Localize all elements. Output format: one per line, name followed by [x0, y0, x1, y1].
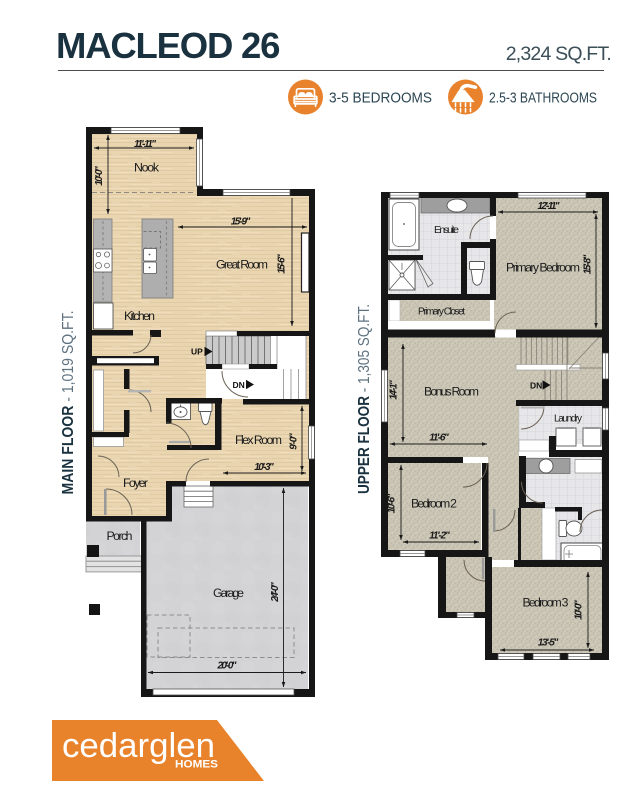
- svg-text:10'-0": 10'-0": [574, 600, 585, 620]
- svg-text:Foyer: Foyer: [123, 476, 148, 490]
- svg-text:10'-3": 10'-3": [254, 462, 274, 473]
- svg-text:10'-0": 10'-0": [94, 166, 105, 186]
- svg-text:11'-6": 11'-6": [429, 433, 449, 444]
- svg-text:Ensuite: Ensuite: [434, 224, 459, 236]
- svg-text:14'-1": 14'-1": [389, 380, 400, 400]
- svg-text:HOMES: HOMES: [175, 759, 218, 771]
- svg-text:DN: DN: [233, 380, 245, 390]
- svg-text:MAIN FLOOR - 1,019 SQ.FT.: MAIN FLOOR - 1,019 SQ.FT.: [60, 311, 77, 495]
- svg-text:11'-2": 11'-2": [429, 531, 450, 542]
- svg-text:UPPER FLOOR - 1,305 SQ.FT.: UPPER FLOOR - 1,305 SQ.FT.: [356, 304, 373, 494]
- svg-text:Primary Closet: Primary Closet: [418, 307, 465, 318]
- svg-text:Bonus Room: Bonus Room: [424, 385, 479, 399]
- svg-text:15'-9": 15'-9": [231, 217, 251, 228]
- svg-text:Bedroom 2: Bedroom 2: [411, 497, 457, 511]
- svg-text:Great Room: Great Room: [216, 258, 268, 272]
- svg-text:9'-0": 9'-0": [289, 433, 300, 450]
- svg-text:Kitchen: Kitchen: [124, 309, 155, 323]
- svg-text:DN: DN: [530, 381, 542, 391]
- svg-text:Primary Bedroom: Primary Bedroom: [506, 260, 580, 274]
- svg-text:Flex Room: Flex Room: [235, 433, 282, 447]
- svg-text:Porch: Porch: [107, 529, 133, 543]
- svg-text:20'-0": 20'-0": [217, 661, 237, 672]
- svg-text:15'-6": 15'-6": [277, 254, 288, 274]
- svg-text:Nook: Nook: [134, 160, 160, 174]
- svg-text:11'-11": 11'-11": [134, 139, 156, 150]
- svg-text:Bedroom 3: Bedroom 3: [523, 596, 569, 610]
- svg-text:15'-8": 15'-8": [583, 255, 594, 275]
- svg-text:Garage: Garage: [213, 586, 244, 600]
- svg-text:24'-0": 24'-0": [270, 582, 281, 603]
- svg-text:12'-11": 12'-11": [538, 201, 560, 212]
- svg-text:UP: UP: [191, 347, 203, 357]
- svg-text:Laundry: Laundry: [554, 414, 582, 425]
- svg-text:13'-5": 13'-5": [538, 638, 559, 649]
- svg-text:10'-6": 10'-6": [387, 494, 398, 514]
